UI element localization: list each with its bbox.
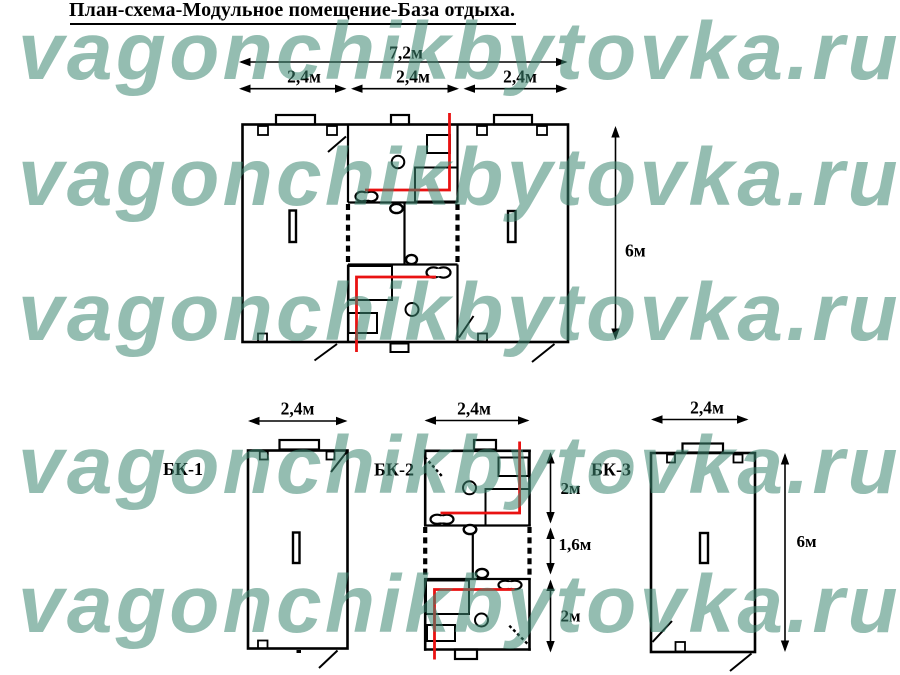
svg-text:6м: 6м [797,532,818,551]
svg-text:2,4м: 2,4м [281,399,315,419]
svg-text:2,4м: 2,4м [690,398,724,418]
svg-text:6м: 6м [625,241,646,261]
svg-text:2,4м: 2,4м [457,399,491,419]
svg-text:1,6м: 1,6м [559,535,592,554]
